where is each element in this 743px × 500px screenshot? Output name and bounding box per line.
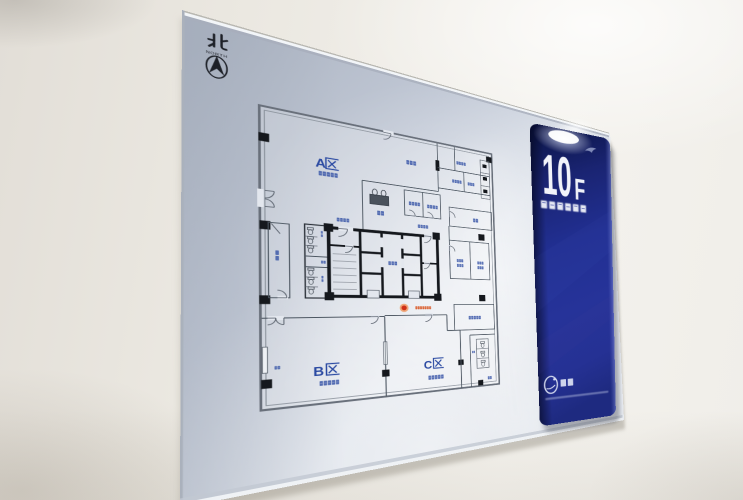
- svg-text:C: C: [424, 359, 433, 372]
- svg-text:B: B: [313, 365, 324, 380]
- svg-text:F: F: [574, 173, 586, 208]
- svg-text:A: A: [315, 156, 326, 171]
- svg-text:10: 10: [541, 142, 572, 209]
